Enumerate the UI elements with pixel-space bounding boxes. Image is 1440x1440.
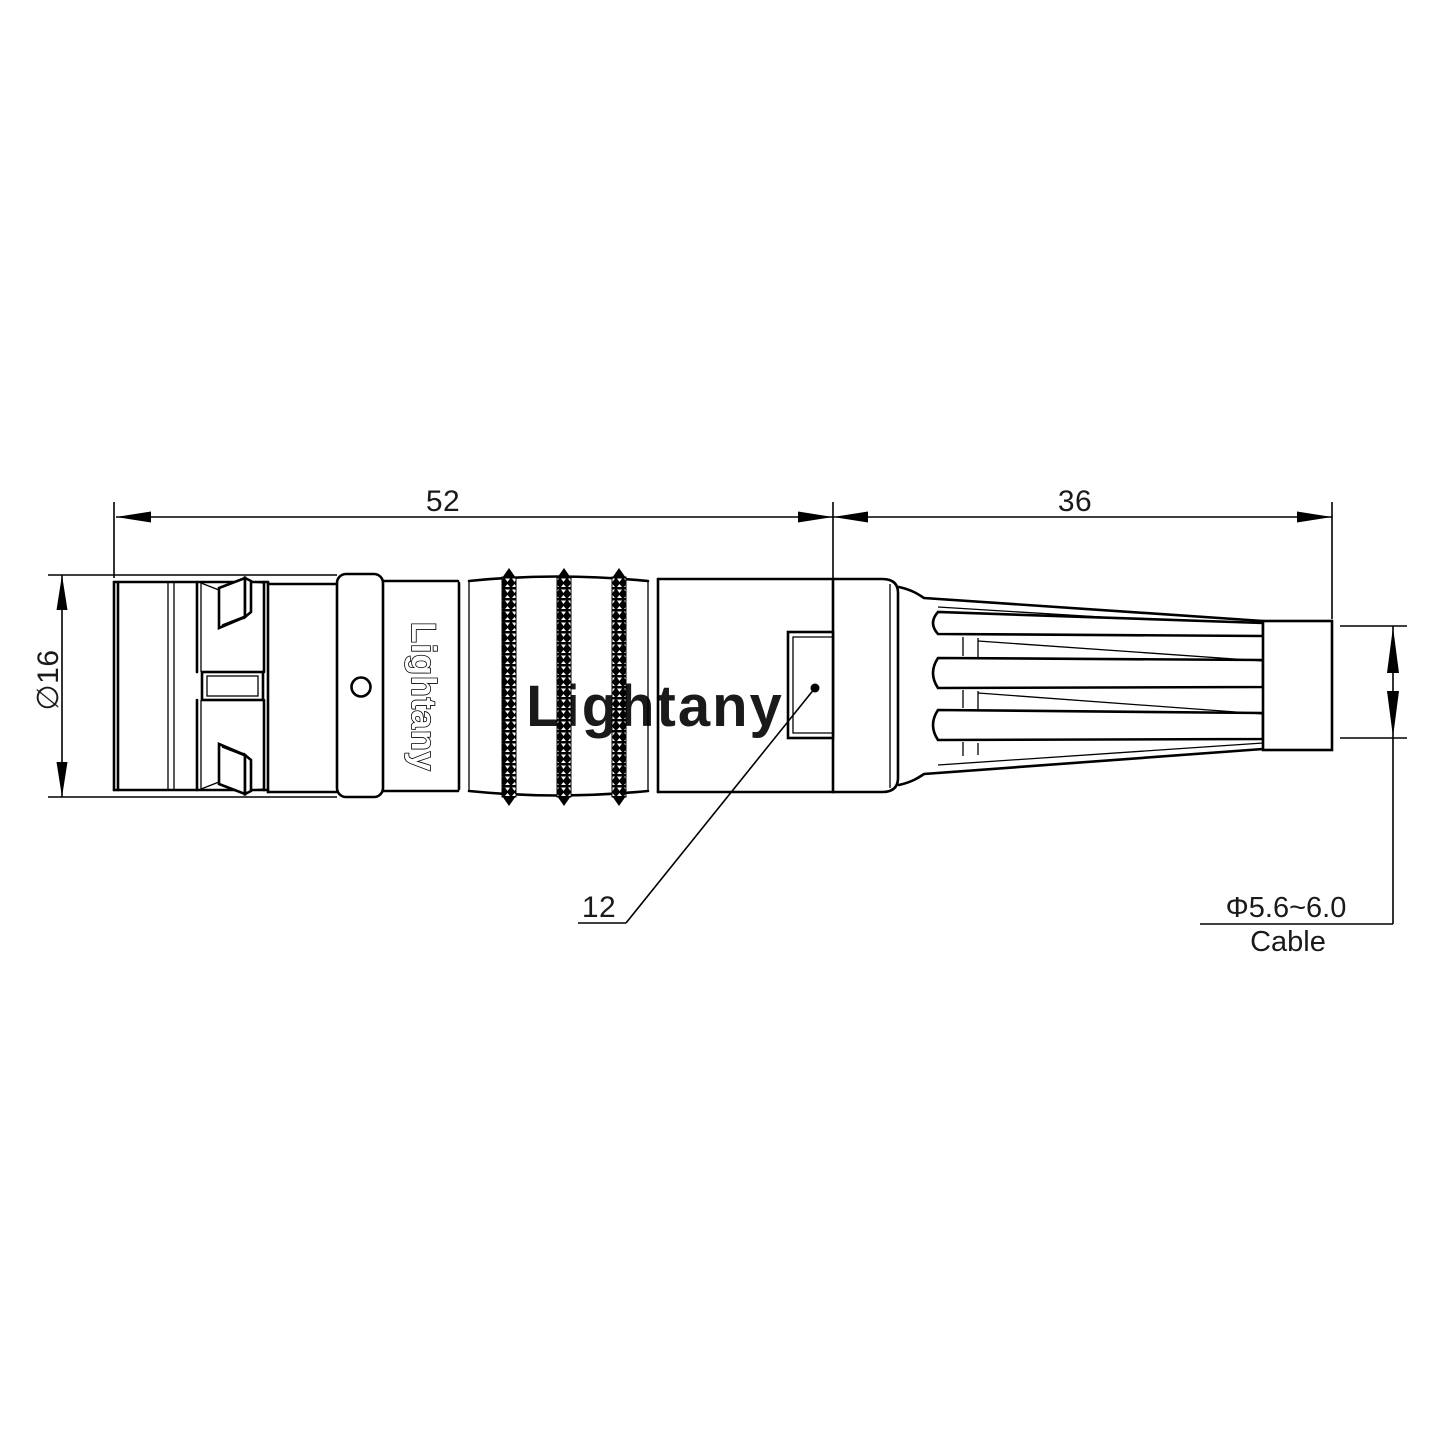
cable-diameter-label: Φ5.6~6.0 <box>1226 892 1347 924</box>
leader-dot <box>811 684 820 693</box>
brand-engraving: Lightany <box>404 622 442 772</box>
collar-ring <box>337 574 383 797</box>
dim-body-diameter-label: ∅16 <box>32 649 65 710</box>
boot-rib <box>933 710 1263 740</box>
cable-caption-label: Cable <box>1250 926 1326 958</box>
boot-rib <box>933 658 1263 688</box>
connector-drawing: Lightany <box>0 0 1440 1440</box>
cable-end-cap <box>1263 621 1332 750</box>
knurl-band <box>557 568 571 806</box>
middle-sleeve-band <box>202 672 263 700</box>
technical-drawing-canvas: Lightany <box>0 0 1440 1440</box>
dim-rear-length-label: 36 <box>1058 485 1092 518</box>
knurl-band <box>502 568 516 806</box>
knurl-band <box>612 568 626 806</box>
window-label: 12 <box>582 891 616 924</box>
dim-front-length-label: 52 <box>426 485 460 518</box>
window-cutout <box>788 632 833 738</box>
